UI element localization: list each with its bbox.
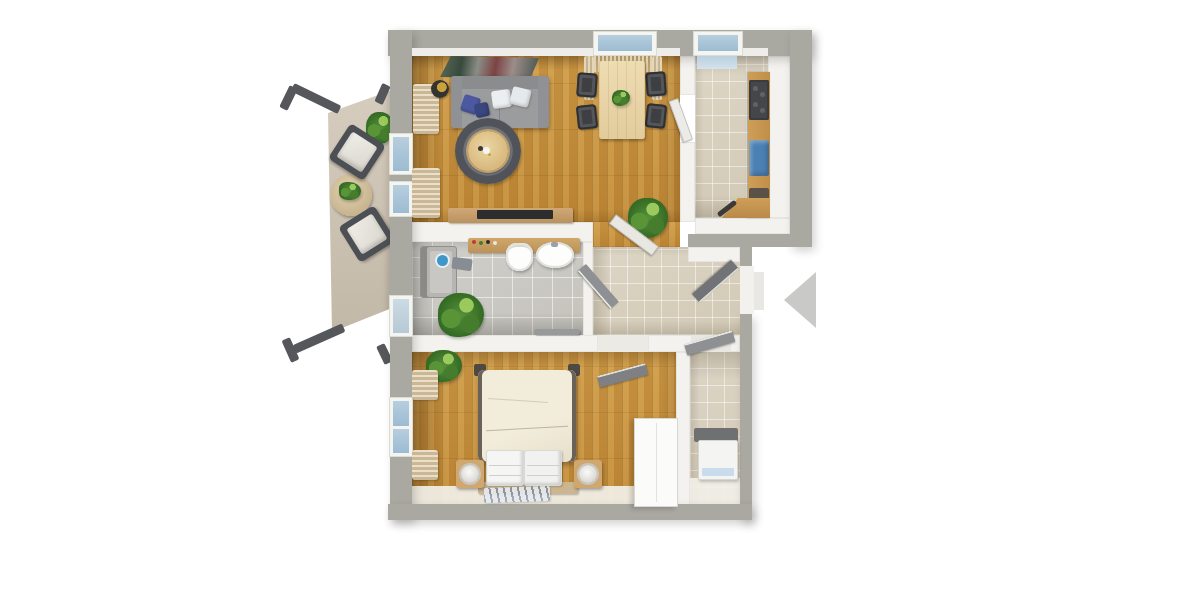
entrance-step bbox=[754, 272, 764, 310]
wardrobe bbox=[634, 418, 678, 507]
double-bed bbox=[478, 370, 576, 462]
blue-pillow bbox=[474, 102, 491, 119]
dining-chair bbox=[576, 104, 598, 130]
floor-lamp-icon bbox=[431, 80, 449, 98]
white-pillow bbox=[491, 89, 512, 109]
dining-chair bbox=[645, 103, 667, 129]
kitchen-wall-face bbox=[768, 56, 790, 218]
wall-hall-north bbox=[688, 247, 740, 262]
nightstand bbox=[574, 460, 602, 488]
nightstand bbox=[456, 460, 484, 488]
wall-bedroom-east bbox=[676, 352, 690, 505]
cooktop-icon bbox=[749, 80, 769, 120]
table-decor bbox=[483, 147, 490, 154]
kitchen-sink-icon bbox=[749, 140, 769, 176]
table-plant bbox=[339, 182, 361, 200]
wall-bathroom-east bbox=[583, 242, 593, 338]
kitchen-window-icon bbox=[694, 32, 742, 55]
dining-chair bbox=[645, 71, 667, 96]
wall-living-kitchen-upper bbox=[680, 56, 695, 95]
wall-outer-right-lower-a bbox=[740, 243, 752, 268]
shower-icon bbox=[420, 246, 457, 298]
awning-arm-icon bbox=[291, 83, 342, 114]
bed-pillow-stack bbox=[524, 450, 562, 486]
towel-rail-icon bbox=[534, 329, 580, 335]
curtain bbox=[412, 370, 438, 400]
curtain bbox=[412, 168, 440, 218]
wall-living-kitchen-lower bbox=[680, 142, 695, 222]
bedroom-window-icon bbox=[390, 398, 412, 456]
dining-chair bbox=[576, 72, 598, 97]
bedroom-rug bbox=[484, 486, 550, 503]
bedroom-door-threshold bbox=[598, 335, 648, 352]
vanity-items bbox=[472, 240, 476, 244]
wall-outer-bottom bbox=[388, 504, 752, 520]
kitchen-wall-face-south bbox=[695, 218, 790, 234]
living-window-icon bbox=[390, 182, 412, 216]
entrance-arrow-icon bbox=[784, 272, 816, 328]
dining-window-icon bbox=[594, 32, 656, 55]
bathroom-window-icon bbox=[390, 296, 412, 336]
awning-arm-icon bbox=[279, 85, 298, 111]
wall-outer-right-lower-b bbox=[740, 314, 752, 520]
washing-machine bbox=[698, 440, 738, 480]
awning-arm-icon bbox=[293, 323, 346, 353]
toilet-icon bbox=[506, 243, 533, 271]
balcony-door-window-icon bbox=[390, 134, 412, 174]
bed-pillow-stack bbox=[486, 450, 524, 486]
faucet-icon bbox=[551, 242, 558, 247]
wall-outer-right-upper bbox=[790, 30, 812, 247]
tv-icon bbox=[477, 210, 553, 219]
floor-plan-canvas bbox=[0, 0, 1200, 600]
curtain bbox=[412, 450, 438, 480]
entrance-threshold bbox=[740, 266, 754, 314]
kitchen-window-sill bbox=[697, 56, 737, 69]
bath-mat bbox=[451, 257, 472, 272]
